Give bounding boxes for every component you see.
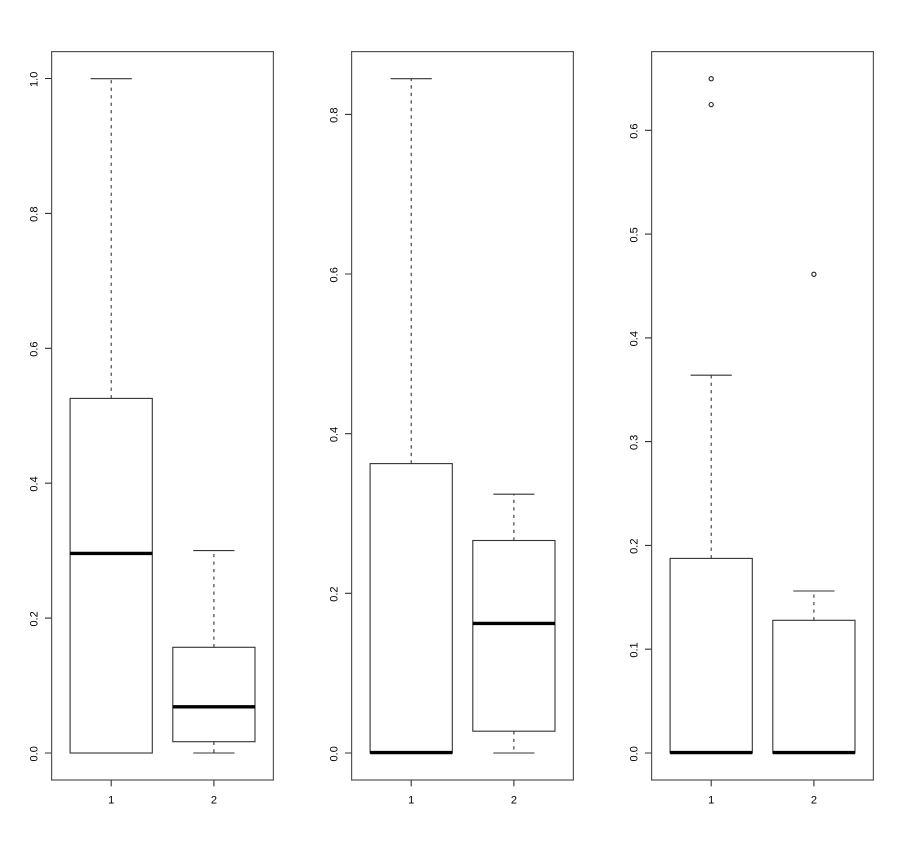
svg-text:2: 2 [211,794,217,806]
svg-text:1: 1 [708,794,714,806]
svg-text:1: 1 [408,794,414,806]
svg-text:1.0: 1.0 [28,72,40,87]
svg-text:0.8: 0.8 [328,108,340,123]
svg-text:0.5: 0.5 [628,227,640,242]
svg-text:0.2: 0.2 [328,586,340,601]
svg-text:0.3: 0.3 [628,435,640,450]
svg-text:2: 2 [811,794,817,806]
svg-text:0.6: 0.6 [628,123,640,138]
svg-text:0.0: 0.0 [328,746,340,761]
svg-text:0.0: 0.0 [628,746,640,761]
svg-text:0.2: 0.2 [28,611,40,626]
svg-text:0.8: 0.8 [28,207,40,222]
svg-text:0.4: 0.4 [28,476,40,491]
svg-text:0.6: 0.6 [328,267,340,282]
svg-text:2: 2 [511,794,517,806]
svg-text:0.2: 0.2 [628,539,640,554]
svg-text:0.4: 0.4 [328,427,340,442]
svg-text:0.4: 0.4 [628,331,640,346]
svg-text:0.1: 0.1 [628,642,640,657]
svg-text:0.0: 0.0 [28,746,40,761]
svg-text:1: 1 [108,794,114,806]
svg-text:0.6: 0.6 [28,341,40,356]
